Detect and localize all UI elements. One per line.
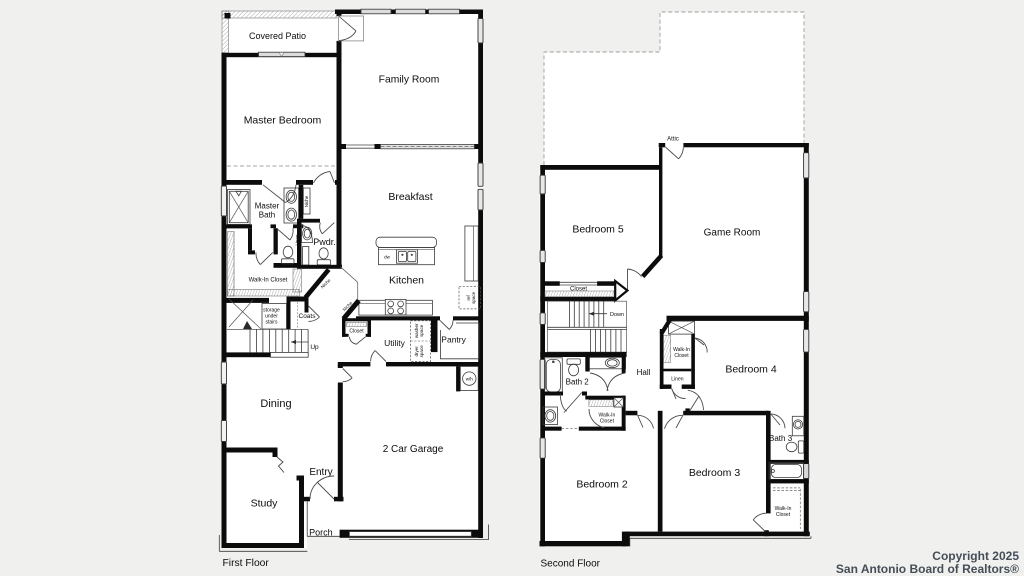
svg-text:Copyright 2025: Copyright 2025 [932,549,1019,563]
svg-text:Bedroom 5: Bedroom 5 [572,224,624,236]
svg-text:Bedroom 2: Bedroom 2 [576,478,628,490]
svg-text:Dining: Dining [260,398,291,410]
svg-text:2 Car Garage: 2 Car Garage [383,444,444,455]
svg-text:Master Bedroom: Master Bedroom [244,115,322,127]
svg-text:Pwdr.: Pwdr. [313,237,336,247]
svg-text:Closet: Closet [570,287,587,293]
svg-text:Walk-In Closet: Walk-In Closet [249,277,288,283]
svg-text:Bedroom 4: Bedroom 4 [725,364,777,376]
svg-text:stairs: stairs [266,320,278,326]
svg-text:Coats: Coats [299,313,317,320]
svg-text:Attic: Attic [667,137,679,143]
svg-text:Covered Patio: Covered Patio [249,31,306,41]
svg-text:Bath 3: Bath 3 [769,434,793,443]
svg-text:Family Room: Family Room [379,75,440,86]
svg-text:space: space [471,291,476,304]
svg-text:Closet: Closet [674,353,689,359]
svg-text:Closet: Closet [349,328,364,334]
svg-text:First Floor: First Floor [223,558,270,569]
svg-text:space: space [419,324,424,337]
svg-text:Bath 2: Bath 2 [566,377,590,386]
svg-text:Bedroom 3: Bedroom 3 [689,467,741,479]
svg-text:Hall: Hall [637,368,651,377]
svg-text:Game Room: Game Room [704,228,761,239]
svg-text:Up: Up [310,344,319,351]
svg-text:Closet: Closet [776,512,791,518]
svg-text:Second Floor: Second Floor [541,559,601,570]
svg-text:Linen: Linen [671,377,683,383]
svg-text:Study: Study [251,498,279,510]
svg-text:Niche: Niche [304,195,309,207]
svg-text:Down: Down [610,312,624,318]
svg-text:Closet: Closet [600,418,615,424]
svg-text:Master: Master [255,202,280,211]
svg-text:dw: dw [384,255,391,260]
svg-text:space: space [419,345,424,358]
svg-text:Bath: Bath [259,211,275,220]
svg-text:San Antonio Board of Realtors®: San Antonio Board of Realtors® [836,562,1019,576]
svg-text:Linen: Linen [294,234,299,246]
svg-text:Utility: Utility [384,338,406,348]
svg-text:Porch: Porch [309,528,333,538]
svg-text:Breakfast: Breakfast [388,191,432,203]
svg-text:Pantry: Pantry [441,335,466,345]
svg-text:Kitchen: Kitchen [389,275,424,287]
svg-text:w/h: w/h [466,377,474,382]
